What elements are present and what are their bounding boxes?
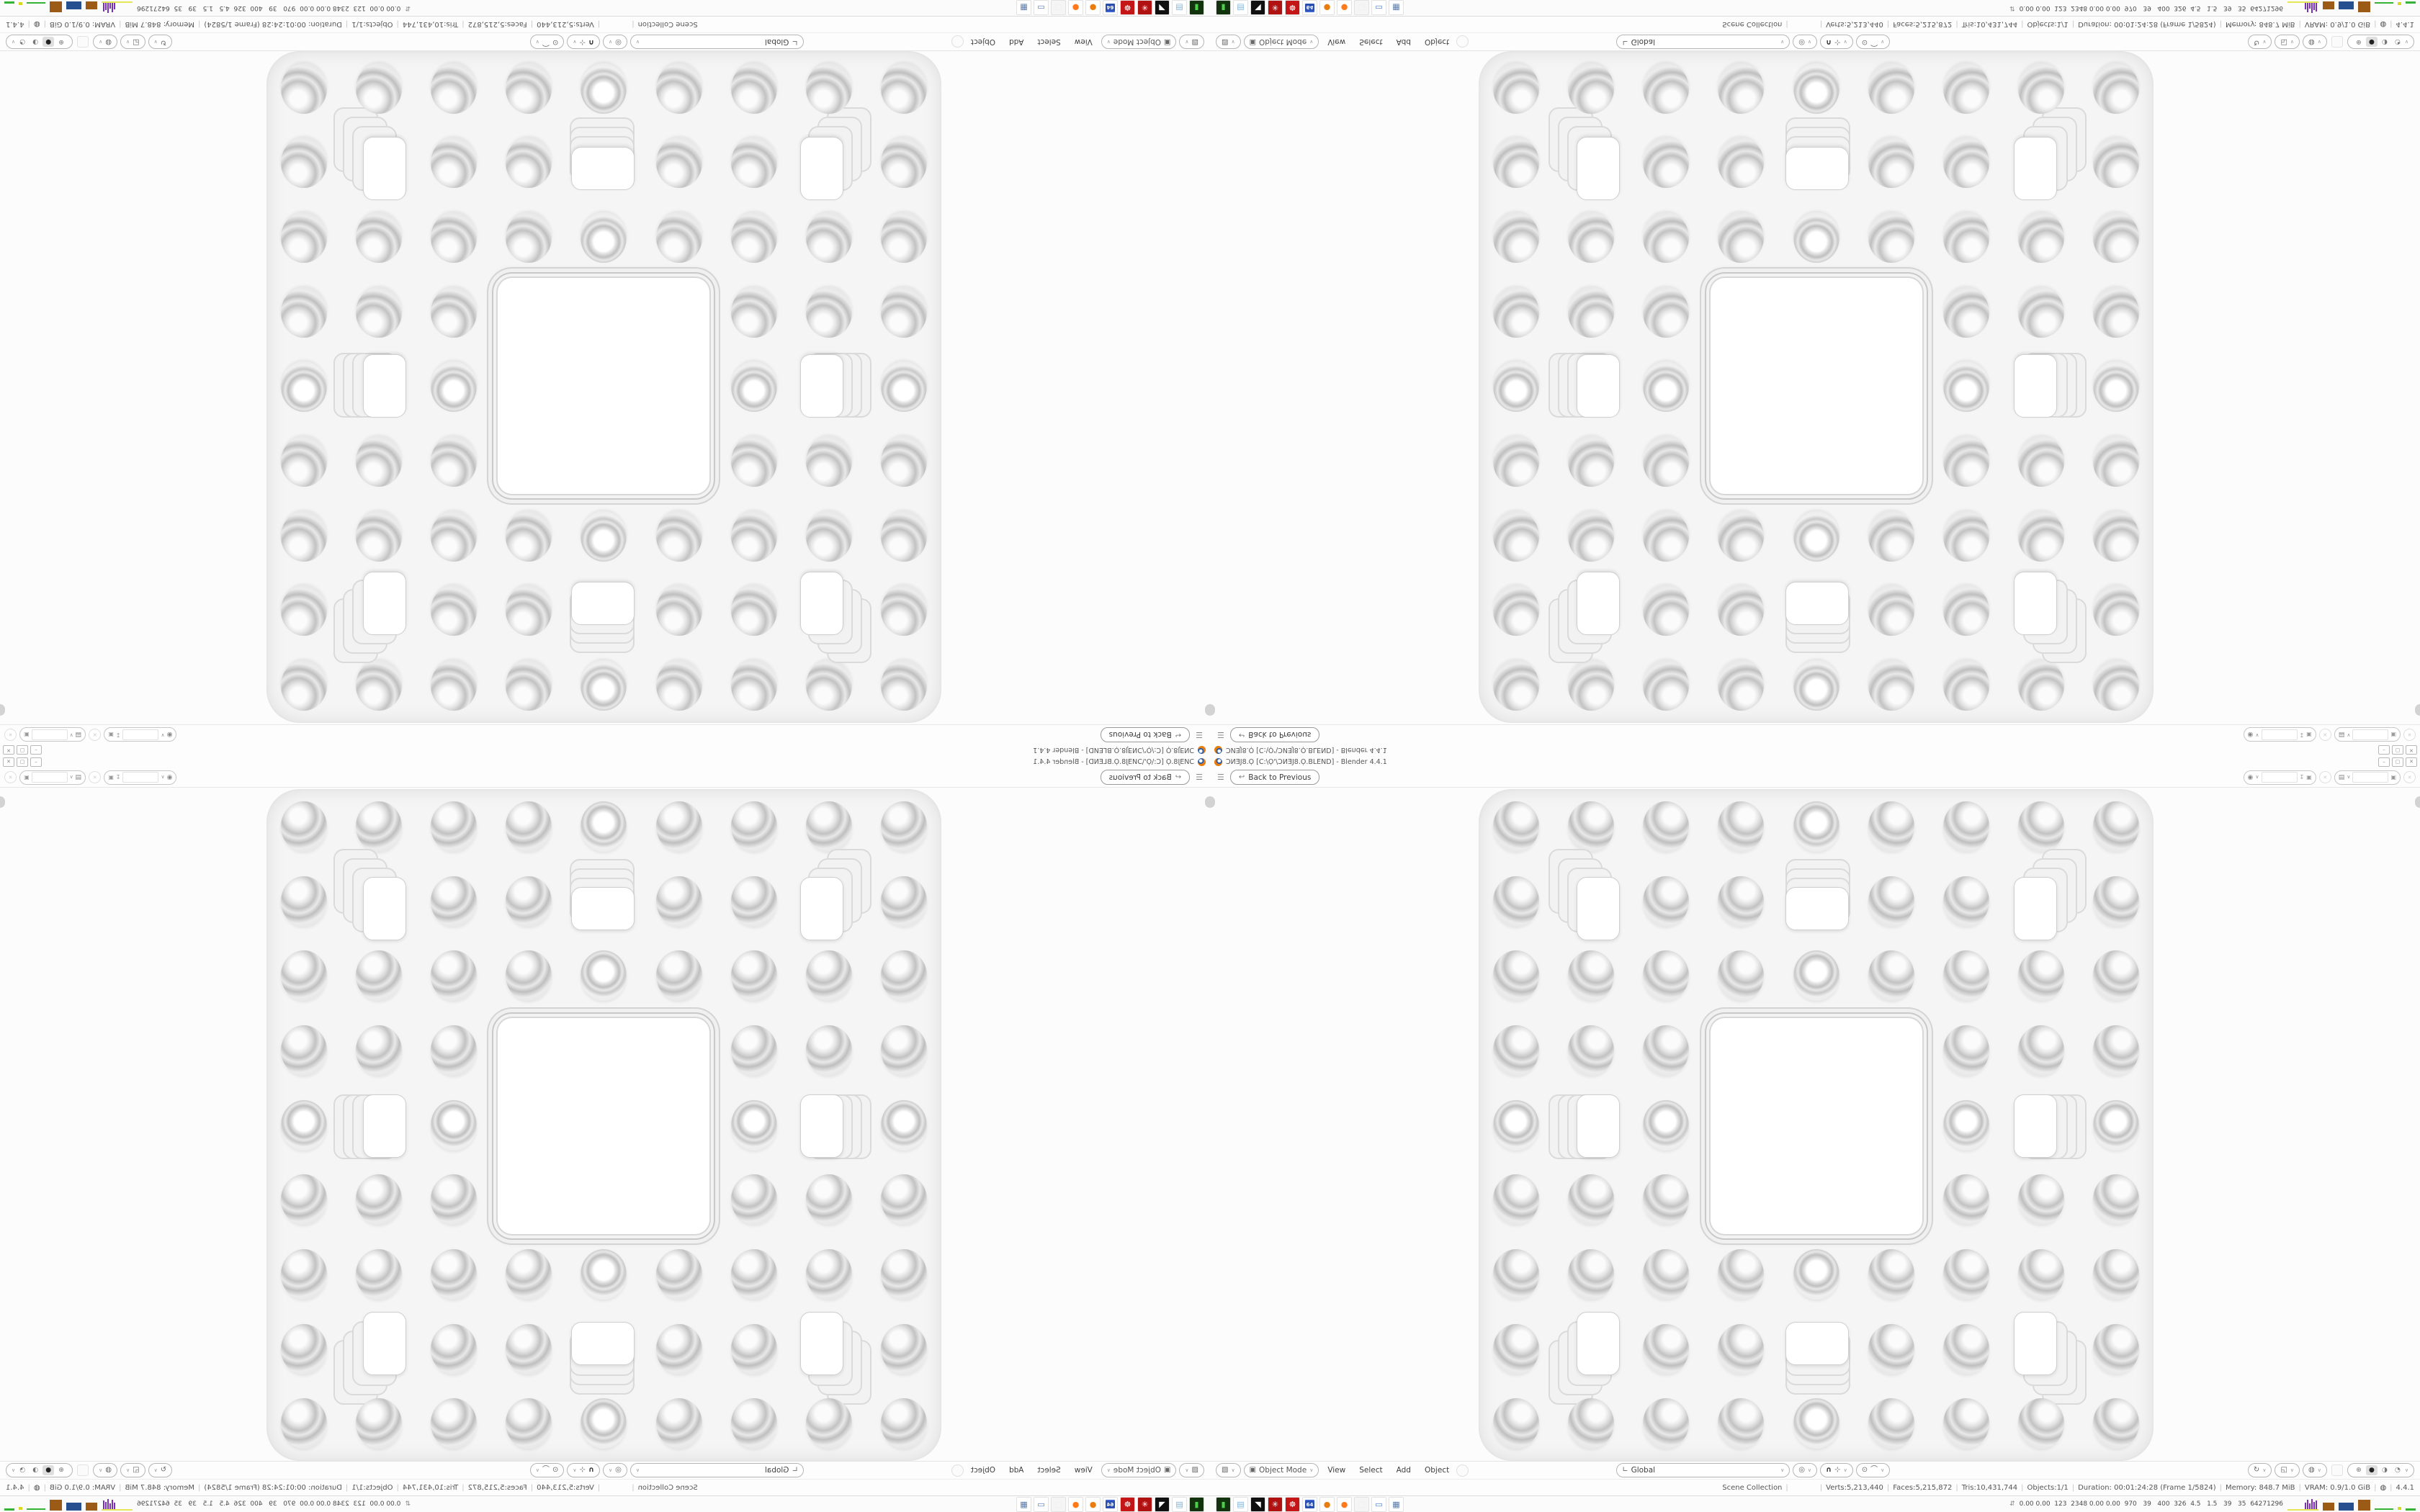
back-to-previous-label: Back to Previous — [1248, 773, 1311, 782]
blender-app-icon[interactable]: ● — [1085, 1, 1101, 16]
new-view-layer-icon[interactable]: ▣ — [24, 732, 30, 738]
new-scene-icon[interactable]: ▣ — [2306, 732, 2312, 738]
chevron-down-icon[interactable]: ∨ — [2255, 732, 2259, 737]
blender-app-icon[interactable]: ● — [1319, 1, 1335, 16]
monitor-readings: 0.00 0.00 123 2348 0.00 0.00 970 39 400 … — [2020, 4, 2283, 12]
overlays-icon: ◱ — [2280, 1467, 2287, 1474]
status-segment: Scene Collection — [638, 1484, 698, 1492]
view-layer-selector[interactable]: ▤ ∨ ▣ — [2334, 770, 2401, 785]
menu-select[interactable]: Select — [1037, 1466, 1060, 1475]
unlink-scene-icon[interactable]: ✕ — [2319, 729, 2331, 741]
sponge-medium-hole — [363, 1094, 406, 1158]
notepad-icon[interactable]: ▤ — [1233, 1, 1248, 16]
remove-view-layer-icon[interactable]: ✕ — [2403, 771, 2416, 783]
chevron-down-icon[interactable]: ∨ — [12, 1468, 15, 1473]
falloff-curve-icon: ⌒ — [1870, 1467, 1878, 1474]
shading-mode-switch[interactable]: ⊕●◑◔∨ — [2347, 1463, 2414, 1477]
shading-wireframe-icon[interactable]: ⊕ — [2353, 1465, 2365, 1475]
menu-object[interactable]: Object — [971, 37, 995, 46]
floppy-64-icon[interactable]: 64 — [1302, 1, 1317, 16]
notepad-icon[interactable]: ▤ — [1172, 1497, 1187, 1512]
blender-version: 4.4.1 — [6, 1484, 24, 1492]
show-gizmo-button[interactable]: ↻ ∨ — [148, 1463, 173, 1477]
unlink-scene-icon[interactable]: ✕ — [89, 771, 101, 783]
toolbar-pull-tab[interactable] — [1205, 704, 1210, 716]
shading-material-preview-icon[interactable]: ◑ — [2379, 1465, 2390, 1475]
xray-toggle-button[interactable]: ◍ ∨ — [93, 1463, 117, 1477]
sponge-cell-sphere — [2018, 1249, 2064, 1300]
shading-material-preview-icon[interactable]: ◑ — [2379, 37, 2390, 47]
sponge-cell-sphere — [2018, 212, 2064, 263]
editor-type-button[interactable]: ▧ ∨ — [1179, 1463, 1204, 1477]
blender-version: 4.4.1 — [2396, 1484, 2414, 1492]
network-graph-line — [4, 1508, 14, 1511]
editor-type-button[interactable]: ▧ ∨ — [1216, 35, 1241, 49]
menu-select[interactable]: Select — [1359, 37, 1382, 46]
snapping-button[interactable]: ∩ ⊹ ∨ — [567, 35, 600, 49]
sponge-central-hole — [492, 272, 715, 500]
pin-icon[interactable]: ↧ — [2300, 732, 2305, 738]
sponge-cell-sphere — [1643, 1249, 1689, 1300]
sponge-cell-sphere — [281, 63, 327, 114]
shading-solid-icon[interactable]: ● — [2366, 1465, 2378, 1475]
minimize-button[interactable]: – — [2378, 757, 2390, 767]
sidebar-pull-tab[interactable] — [2415, 704, 2420, 716]
shading-rendered-icon[interactable]: ◔ — [2392, 37, 2403, 47]
show-overlays-button[interactable]: ◱ ∨ — [2275, 35, 2300, 49]
snap-pivot-button[interactable]: ◎ ∨ — [603, 35, 627, 49]
red-gear-icon[interactable]: ☸ — [1120, 1497, 1135, 1512]
network-access-icon: ◍ — [34, 1484, 40, 1492]
shading-material-preview-icon[interactable]: ◑ — [30, 1465, 41, 1475]
sponge-cell-sphere — [1943, 1249, 1989, 1300]
calculator-icon[interactable]: ▦ — [1016, 1, 1031, 16]
editor-type-button[interactable]: ▧ ∨ — [1216, 1463, 1241, 1477]
snapping-button[interactable]: ∩ ⊹ ∨ — [1820, 35, 1853, 49]
restore-button[interactable]: ▢ — [17, 757, 28, 767]
menu-select[interactable]: Select — [1037, 37, 1060, 46]
proportional-editing-button[interactable]: ⊙ ⌒ ∨ — [530, 1463, 565, 1477]
chevron-down-icon: ∨ — [1844, 1468, 1847, 1473]
back-to-previous-button[interactable]: ↩ Back to Previous — [1101, 727, 1190, 742]
transform-orientation-dropdown[interactable]: ∟ Global ∨ — [1616, 1463, 1790, 1477]
show-overlays-button[interactable]: ◱ ∨ — [2275, 1463, 2300, 1477]
sponge-central-hole — [1705, 1012, 1928, 1240]
display-settings-icon[interactable]: ▭ — [1371, 1497, 1386, 1512]
minimize-button[interactable]: – — [30, 757, 42, 767]
menu-object[interactable]: Object — [971, 1466, 995, 1475]
sponge-cell-sphere — [731, 212, 777, 263]
sponge-cell-sphere — [1568, 1174, 1614, 1225]
sponge-cell-sphere — [881, 876, 927, 927]
proportional-editing-button[interactable]: ⊙ ⌒ ∨ — [1856, 35, 1891, 49]
menu-view[interactable]: View — [1327, 37, 1345, 46]
3d-viewport[interactable] — [1210, 51, 2420, 724]
sponge-cell-sphere — [356, 950, 402, 1001]
back-to-previous-button[interactable]: ↩ Back to Previous — [1230, 770, 1319, 785]
mode-dropdown[interactable]: ▣ Object Mode ∨ — [1244, 35, 1319, 49]
red-gear-icon[interactable]: ☸ — [1285, 1497, 1300, 1512]
scene-selector[interactable]: ◉ ∨ ↧ ▣ — [104, 770, 176, 785]
media-player-icon[interactable]: ◥ — [1250, 1, 1265, 16]
firefox-icon[interactable]: ● — [1337, 1, 1352, 16]
sponge-cell-sphere — [281, 362, 327, 413]
new-scene-icon[interactable]: ▣ — [2306, 774, 2312, 780]
transform-orientation-dropdown[interactable]: ∟ Global ∨ — [1616, 35, 1790, 49]
show-gizmo-button[interactable]: ↻ ∨ — [2248, 35, 2272, 49]
hamburger-menu-icon[interactable]: ☰ — [1196, 730, 1203, 739]
display-settings-icon[interactable]: ▭ — [1034, 1497, 1049, 1512]
media-player-icon[interactable]: ◥ — [1250, 1497, 1265, 1512]
scene-icon: ◉ — [167, 774, 173, 781]
header-right-cluster: ↻ ∨ ◱ ∨ ◍ ∨ ⊕●◑◔∨ — [6, 1463, 172, 1477]
xray-toggle-button[interactable]: ◍ ∨ — [2303, 35, 2327, 49]
menu-view[interactable]: View — [1075, 37, 1093, 46]
notepad-icon[interactable]: ▤ — [1233, 1497, 1248, 1512]
scene-name-field[interactable] — [2262, 729, 2298, 740]
snap-pivot-button[interactable]: ◎ ∨ — [1793, 1463, 1817, 1477]
show-gizmo-button[interactable]: ↻ ∨ — [2248, 1463, 2272, 1477]
calculator-icon[interactable]: ▦ — [1389, 1, 1404, 16]
view-layer-icon: ▤ — [2339, 732, 2345, 739]
chevron-down-icon[interactable]: ∨ — [161, 732, 164, 737]
magnet-icon: ∩ — [588, 1467, 594, 1474]
3d-viewport-editor-icon: ▧ — [1222, 1467, 1228, 1474]
sponge-cell-sphere — [1943, 1100, 1989, 1151]
memory-gauge-block — [2339, 1503, 2354, 1511]
menu-add[interactable]: Add — [1009, 37, 1023, 46]
view-layer-name-field[interactable] — [32, 772, 68, 783]
menu-object[interactable]: Object — [1425, 1466, 1449, 1475]
minimize-button[interactable]: – — [2378, 746, 2390, 755]
view-layer-name-field[interactable] — [2352, 772, 2388, 783]
mode-dropdown[interactable]: ▣ Object Mode ∨ — [1101, 1463, 1177, 1477]
hamburger-menu-icon[interactable]: ☰ — [1196, 773, 1203, 782]
disk-gauge-block — [2323, 1503, 2334, 1511]
scene-layer-selectors: ◉ ∨ ↧ ▣ ✕ ▤ ∨ ▣ ✕ — [2244, 728, 2416, 742]
system-monitor-icon[interactable]: ▮ — [1189, 1497, 1204, 1512]
ghost-app-icon[interactable]: ▢ — [1354, 1497, 1369, 1512]
pin-icon[interactable]: ↧ — [2300, 774, 2305, 780]
io-gauge-block — [2358, 1500, 2370, 1511]
new-view-layer-icon[interactable]: ▣ — [2390, 774, 2396, 780]
red-mandala-icon[interactable]: ✳ — [1137, 1497, 1152, 1512]
xray-toggle-button[interactable]: ◍ ∨ — [93, 35, 117, 49]
scene-name-field[interactable] — [2262, 772, 2298, 783]
sponge-cell-sphere — [356, 1025, 402, 1076]
show-gizmo-button[interactable]: ↻ ∨ — [148, 35, 173, 49]
sponge-cell-sphere — [581, 950, 627, 1001]
taskbar-app-icons: ▮▤◥✳☸64●●▢▭▦ — [1216, 1497, 1406, 1512]
back-to-previous-button[interactable]: ↩ Back to Previous — [1230, 727, 1319, 742]
sponge-medium-hole — [1785, 887, 1849, 930]
magnet-icon: ∩ — [1826, 38, 1832, 45]
sponge-cell-sphere — [1643, 660, 1689, 711]
sponge-cell-sphere — [731, 511, 777, 562]
sponge-cell-sphere — [1568, 1398, 1614, 1449]
sponge-cell-sphere — [356, 1249, 402, 1300]
sponge-cell-sphere — [506, 876, 552, 927]
ghost-app-icon[interactable]: ▢ — [1354, 1, 1369, 16]
3d-viewport[interactable] — [0, 788, 1210, 1461]
new-view-layer-icon[interactable]: ▣ — [2390, 732, 2396, 738]
3d-viewport[interactable] — [0, 51, 1210, 724]
sponge-cell-sphere — [431, 1025, 477, 1076]
menger-sponge-render — [1479, 789, 2154, 1461]
calculator-icon[interactable]: ▦ — [1016, 1497, 1031, 1512]
scene-name-field[interactable] — [122, 772, 158, 783]
menu-add[interactable]: Add — [1397, 37, 1411, 46]
menu-view[interactable]: View — [1327, 1466, 1345, 1475]
sponge-cell-sphere — [1868, 138, 1914, 189]
system-monitor-widget[interactable]: ⇵ 0.00 0.00 123 2348 0.00 0.00 970 39 40… — [4, 1498, 411, 1511]
hamburger-menu-icon[interactable]: ☰ — [1217, 730, 1224, 739]
calculator-icon-glyph: ▦ — [1392, 4, 1399, 12]
scene-name-field[interactable] — [122, 729, 158, 740]
shading-mode-switch[interactable]: ⊕●◑◔∨ — [6, 35, 73, 49]
blender-app-icon[interactable]: ● — [1085, 1497, 1101, 1512]
snapping-button[interactable]: ∩ ⊹ ∨ — [567, 1463, 600, 1477]
sponge-cell-sphere — [2093, 1025, 2139, 1076]
snapping-button[interactable]: ∩ ⊹ ∨ — [1820, 1463, 1853, 1477]
window-titlebar[interactable]: ƆИƎJ8.Ọ [C:\Ọ'\ƆИƎJ8.Ọ.BLEND] - Blender … — [1210, 744, 2420, 756]
blender-topbar: ☰ ↩ Back to Previous ◉ ∨ ↧ ▣ ✕ ▤ ∨ ▣ — [1210, 768, 2420, 788]
remove-view-layer-icon[interactable]: ✕ — [4, 729, 17, 741]
activity-dot — [2398, 1507, 2401, 1510]
scene-selector[interactable]: ◉ ∨ ↧ ▣ — [104, 728, 176, 742]
grease-pencil-icon[interactable] — [951, 36, 964, 48]
sponge-cell-sphere — [2093, 63, 2139, 114]
chevron-down-icon[interactable]: ∨ — [2347, 775, 2350, 780]
sponge-cell-sphere — [1493, 1398, 1539, 1449]
shading-rendered-icon[interactable]: ◔ — [17, 1465, 28, 1475]
menu-add[interactable]: Add — [1397, 1466, 1411, 1475]
restore-button[interactable]: ▢ — [2392, 757, 2403, 767]
sponge-medium-hole — [2014, 355, 2057, 418]
show-overlays-button[interactable]: ◱ ∨ — [120, 1463, 145, 1477]
chevron-down-icon: ∨ — [1107, 1468, 1111, 1473]
xray-toggle-button[interactable]: ◍ ∨ — [2303, 1463, 2327, 1477]
chevron-down-icon: ∨ — [2318, 1468, 2321, 1473]
ghost-app-icon[interactable]: ▢ — [1051, 1, 1066, 16]
sponge-cell-sphere — [2093, 287, 2139, 338]
red-mandala-icon[interactable]: ✳ — [1268, 1, 1283, 16]
sponge-medium-hole — [363, 355, 406, 418]
shading-solid-icon[interactable]: ● — [2366, 37, 2378, 47]
chevron-down-icon[interactable]: ∨ — [2347, 732, 2350, 737]
blender-app-icon[interactable]: ● — [1319, 1497, 1335, 1512]
toolbar-pull-tab[interactable] — [1210, 704, 1215, 716]
sponge-cell-sphere — [431, 63, 477, 114]
chevron-down-icon: ∨ — [1844, 40, 1847, 45]
chevron-down-icon[interactable]: ∨ — [2405, 40, 2408, 45]
sponge-cell-sphere — [1568, 660, 1614, 711]
proportional-editing-button[interactable]: ⊙ ⌒ ∨ — [530, 35, 565, 49]
window-titlebar[interactable]: ƆИƎJ8.Ọ [C:\Ọ'\ƆИƎJ8.Ọ.BLEND] - Blender … — [0, 744, 1210, 756]
chevron-down-icon[interactable]: ∨ — [70, 775, 73, 780]
window-titlebar[interactable]: ƆИƎJ8.Ọ [C:\Ọ'\ƆИƎJ8.Ọ.BLEND] - Blender … — [0, 756, 1210, 768]
mode-dropdown[interactable]: ▣ Object Mode ∨ — [1101, 35, 1177, 49]
shading-rendered-icon[interactable]: ◔ — [2392, 1465, 2403, 1475]
sponge-cell-sphere — [806, 212, 852, 263]
chevron-down-icon: ∨ — [1780, 40, 1784, 45]
sponge-cell-sphere — [2093, 660, 2139, 711]
sponge-cell-sphere — [2093, 362, 2139, 413]
red-gear-icon[interactable]: ☸ — [1285, 1, 1300, 16]
falloff-curve-icon: ⌒ — [542, 1467, 550, 1474]
shading-rendered-icon[interactable]: ◔ — [17, 37, 28, 47]
media-player-icon[interactable]: ◥ — [1155, 1, 1170, 16]
shading-material-preview-icon[interactable]: ◑ — [30, 37, 41, 47]
status-segment: Tris:10,431,744 — [1962, 1484, 2017, 1492]
sidebar-pull-tab[interactable] — [0, 704, 5, 716]
close-button[interactable]: ✕ — [2406, 746, 2417, 755]
grease-pencil-icon[interactable] — [951, 1464, 964, 1477]
system-monitor-widget[interactable]: ⇵ 0.00 0.00 123 2348 0.00 0.00 970 39 40… — [4, 1, 411, 14]
chevron-down-icon[interactable]: ∨ — [2405, 1468, 2408, 1473]
show-overlays-button[interactable]: ◱ ∨ — [120, 35, 145, 49]
orientation-label: Global — [642, 1466, 789, 1475]
pin-icon[interactable]: ↧ — [116, 732, 121, 738]
calculator-icon[interactable]: ▦ — [1389, 1497, 1404, 1512]
shading-wireframe-icon[interactable]: ⊕ — [55, 1465, 67, 1475]
sponge-cell-sphere — [2093, 1249, 2139, 1300]
remove-view-layer-icon[interactable]: ✕ — [2403, 729, 2416, 741]
pin-icon[interactable]: ↧ — [116, 774, 121, 780]
view-layer-name-field[interactable] — [2352, 729, 2388, 740]
firefox-icon[interactable]: ● — [1337, 1497, 1352, 1512]
unlink-scene-icon[interactable]: ✕ — [89, 729, 101, 741]
chevron-down-icon: ∨ — [126, 1468, 130, 1473]
red-mandala-icon[interactable]: ✳ — [1268, 1497, 1283, 1512]
transform-orientation-dropdown[interactable]: ∟ Global ∨ — [630, 1463, 804, 1477]
new-view-layer-icon[interactable]: ▣ — [24, 774, 30, 780]
sponge-cell-sphere — [1568, 1249, 1614, 1300]
floppy-64-icon[interactable]: 64 — [1103, 1, 1118, 16]
sponge-cell-sphere — [2018, 660, 2064, 711]
notepad-icon[interactable]: ▤ — [1172, 1, 1187, 16]
sponge-cell-sphere — [806, 950, 852, 1001]
shading-solid-icon[interactable]: ● — [42, 37, 54, 47]
restore-button[interactable]: ▢ — [17, 746, 28, 755]
scene-selector[interactable]: ◉ ∨ ↧ ▣ — [2244, 770, 2316, 785]
shading-wireframe-icon[interactable]: ⊕ — [2353, 37, 2365, 47]
grease-pencil-icon[interactable] — [1456, 1464, 1469, 1477]
firefox-icon[interactable]: ● — [1068, 1497, 1083, 1512]
system-monitor-icon[interactable]: ▮ — [1216, 1, 1231, 16]
view-layer-selector[interactable]: ▤ ∨ ▣ — [19, 770, 86, 785]
sponge-cell-sphere — [1943, 876, 1989, 927]
3d-viewport[interactable] — [1210, 788, 2420, 1461]
display-settings-icon[interactable]: ▭ — [1371, 1, 1386, 16]
menu-view[interactable]: View — [1075, 1466, 1093, 1475]
sponge-cell-sphere — [1493, 362, 1539, 413]
snap-circle-icon: ◎ — [615, 1467, 622, 1474]
new-scene-icon[interactable]: ▣ — [108, 732, 114, 738]
ghost-app-icon[interactable]: ▢ — [1051, 1497, 1066, 1512]
sidebar-pull-tab[interactable] — [2415, 796, 2420, 808]
snap-pivot-button[interactable]: ◎ ∨ — [1793, 35, 1817, 49]
system-monitor-icon[interactable]: ▮ — [1216, 1497, 1231, 1512]
window-titlebar[interactable]: ƆИƎJ8.Ọ [C:\Ọ'\ƆИƎJ8.Ọ.BLEND] - Blender … — [1210, 756, 2420, 768]
toolbar-pull-tab[interactable] — [1210, 796, 1215, 808]
minimize-button[interactable]: – — [30, 746, 42, 755]
remove-view-layer-icon[interactable]: ✕ — [4, 771, 17, 783]
close-button[interactable]: ✕ — [3, 746, 14, 755]
sponge-medium-hole — [363, 572, 406, 636]
transform-orientation-dropdown[interactable]: ∟ Global ∨ — [630, 35, 804, 49]
sponge-cell-sphere — [656, 138, 702, 189]
chevron-down-icon: ∨ — [154, 40, 158, 45]
view-layer-name-field[interactable] — [32, 729, 68, 740]
firefox-icon[interactable]: ● — [1068, 1, 1083, 16]
menu-select[interactable]: Select — [1359, 1466, 1382, 1475]
new-scene-icon[interactable]: ▣ — [108, 774, 114, 780]
system-monitor-widget[interactable]: ⇵ 0.00 0.00 123 2348 0.00 0.00 970 39 40… — [2009, 1498, 2416, 1511]
hamburger-menu-icon[interactable]: ☰ — [1217, 773, 1224, 782]
red-gear-icon[interactable]: ☸ — [1120, 1, 1135, 16]
object-mode-icon: ▣ — [1250, 38, 1256, 45]
sponge-cell-sphere — [1493, 511, 1539, 562]
close-button[interactable]: ✕ — [3, 757, 14, 767]
sponge-cell-sphere — [881, 660, 927, 711]
status-segment: VRAM: 0.9/1.0 GiB — [2305, 21, 2370, 29]
menu-object[interactable]: Object — [1425, 37, 1449, 46]
proportional-editing-button[interactable]: ⊙ ⌒ ∨ — [1856, 1463, 1891, 1477]
chevron-down-icon[interactable]: ∨ — [12, 40, 15, 45]
floppy-64-icon[interactable]: 64 — [1302, 1497, 1317, 1512]
shading-mode-switch[interactable]: ⊕●◑◔∨ — [2347, 35, 2414, 49]
chevron-down-icon: ∨ — [636, 40, 640, 45]
sidebar-pull-tab[interactable] — [0, 796, 5, 808]
restore-button[interactable]: ▢ — [2392, 746, 2403, 755]
shading-solid-icon[interactable]: ● — [42, 1465, 54, 1475]
mode-label: Object Mode — [1259, 37, 1307, 46]
shading-wireframe-icon[interactable]: ⊕ — [55, 37, 67, 47]
quadrant-bottom-right: ƆИƎJ8.Ọ [C:\Ọ'\ƆИƎJ8.Ọ.BLEND] - Blender … — [1210, 756, 2420, 1512]
scene-selector[interactable]: ◉ ∨ ↧ ▣ — [2244, 728, 2316, 742]
red-mandala-icon[interactable]: ✳ — [1137, 1, 1152, 16]
io-gauge-block — [2358, 1, 2370, 12]
chevron-down-icon[interactable]: ∨ — [2255, 775, 2259, 780]
close-button[interactable]: ✕ — [2406, 757, 2417, 767]
display-settings-icon[interactable]: ▭ — [1034, 1, 1049, 16]
toolbar-pull-tab[interactable] — [1205, 796, 1210, 808]
shading-mode-switch[interactable]: ⊕●◑◔∨ — [6, 1463, 73, 1477]
system-monitor-icon[interactable]: ▮ — [1189, 1, 1204, 16]
sponge-cell-sphere — [356, 436, 402, 487]
view-layer-selector[interactable]: ▤ ∨ ▣ — [19, 728, 86, 742]
editor-type-button[interactable]: ▧ ∨ — [1179, 35, 1204, 49]
mode-dropdown[interactable]: ▣ Object Mode ∨ — [1244, 1463, 1319, 1477]
media-player-icon[interactable]: ◥ — [1155, 1497, 1170, 1512]
menu-add[interactable]: Add — [1009, 1466, 1023, 1475]
grease-pencil-icon[interactable] — [1456, 36, 1469, 48]
chevron-down-icon[interactable]: ∨ — [161, 775, 164, 780]
network-graph-line — [2375, 2, 2393, 4]
system-monitor-widget[interactable]: ⇵ 0.00 0.00 123 2348 0.00 0.00 970 39 40… — [2009, 1, 2416, 14]
sponge-cell-sphere — [1493, 1025, 1539, 1076]
firefox-icon-glyph: ● — [1072, 4, 1080, 12]
snap-pivot-button[interactable]: ◎ ∨ — [603, 1463, 627, 1477]
header-right-cluster: ↻ ∨ ◱ ∨ ◍ ∨ ⊕●◑◔∨ — [2248, 1463, 2414, 1477]
sponge-cell-sphere — [656, 511, 702, 562]
view-layer-selector[interactable]: ▤ ∨ ▣ — [2334, 728, 2401, 742]
floppy-64-icon[interactable]: 64 — [1103, 1497, 1118, 1512]
chevron-down-icon[interactable]: ∨ — [70, 732, 73, 737]
unlink-scene-icon[interactable]: ✕ — [2319, 771, 2331, 783]
back-to-previous-button[interactable]: ↩ Back to Previous — [1101, 770, 1190, 785]
